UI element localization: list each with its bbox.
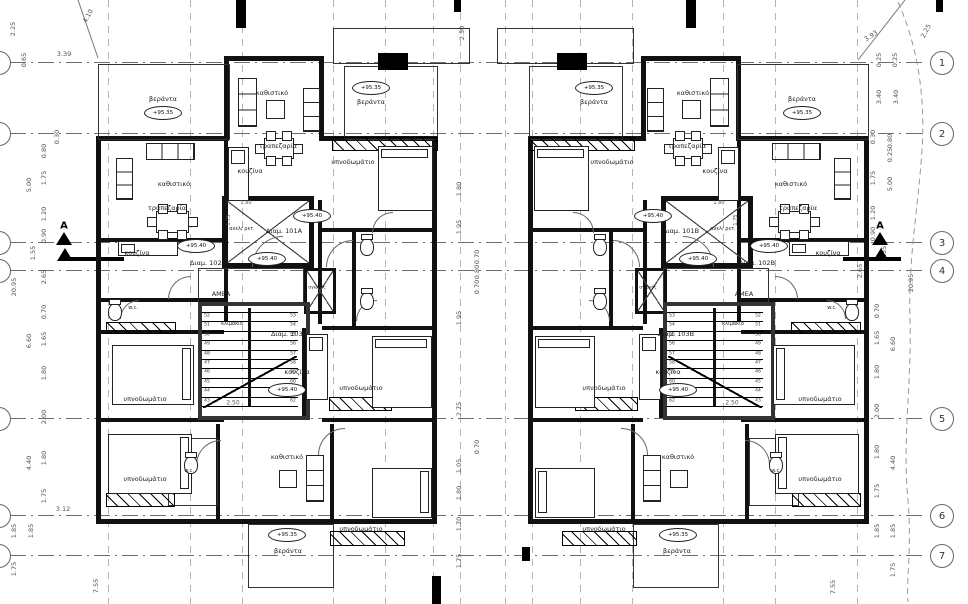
pillow-icon (375, 339, 427, 348)
column-pier (236, 0, 246, 28)
elevation-badge: +95.40 (659, 383, 697, 397)
stair-tread-number: 52 (755, 314, 761, 319)
dimension-label: 7.55 (829, 580, 837, 594)
dimension-label: 1.80 (40, 366, 48, 380)
dimension-label: 1.80 (40, 451, 48, 465)
elevation-badge: +95.40 (177, 239, 215, 253)
dimension-label: 4.40 (25, 456, 33, 470)
dimension-label: 5.00 (886, 177, 894, 191)
dimension-label: 6.60 (889, 337, 897, 351)
dimension-label: 4.40 (889, 456, 897, 470)
room-label: w.c. (128, 305, 138, 311)
stair-tread-number: 46 (755, 370, 761, 375)
stair-tread-number: 51 (755, 323, 761, 328)
room-label: υπνοδωμάτιο (339, 525, 382, 533)
dimension-label: 3.40 (875, 90, 883, 104)
pillow-icon (776, 348, 785, 400)
stair-tread-number: 53 (290, 314, 296, 319)
stair-tread-number: 44 (204, 389, 210, 394)
column-pier (686, 0, 696, 28)
column-pier (557, 53, 587, 70)
dimension-label: 1.75 (455, 554, 463, 568)
sofa-icon (116, 158, 133, 200)
stair-tread-number: 48 (755, 351, 761, 356)
room-label: κουζίνα (702, 167, 727, 175)
room-label: κουζίνα (124, 249, 149, 257)
stair-tread-number: 45 (204, 379, 210, 384)
stair-tread-number: 47 (204, 361, 210, 366)
toilet-icon (845, 303, 859, 321)
chair-icon (691, 156, 701, 166)
sink-icon (792, 244, 806, 253)
sofa-icon (238, 78, 257, 127)
column-pier (936, 0, 943, 12)
dimension-label: 1.75 (869, 171, 877, 185)
room-label: ΑΜΕΑ (212, 290, 231, 298)
tv-table-icon (682, 100, 701, 119)
elevation-badge: +95.40 (750, 239, 788, 253)
stair-tread-number: 62 (669, 398, 675, 403)
toilet-tank-icon (361, 288, 373, 294)
dimension-label: 20.95 (10, 278, 18, 297)
dimension-label: 6.60 (25, 334, 33, 348)
room-label: ανελ/ ρετ. (710, 226, 736, 232)
dimension-label: 2.00 (40, 410, 48, 424)
room-label: υπνοδωμάτιο (590, 158, 633, 166)
dimension-label: 0.80 (886, 134, 894, 148)
chair-icon (810, 217, 820, 227)
closet-hatch (562, 531, 637, 546)
dimension-label: 3.39 (57, 50, 71, 58)
elevation-badge: +95.40 (679, 252, 717, 266)
room-label: βεράντα (357, 98, 385, 106)
room-label: υπνοδωμάτιο (582, 525, 625, 533)
dimension-label: 1.75 (40, 171, 48, 185)
sofa-icon (772, 143, 821, 160)
dimension-label: 0.70 (473, 250, 481, 264)
chair-icon (691, 131, 701, 141)
sink-icon (642, 337, 656, 351)
room-label: κουζίνα (815, 249, 840, 257)
dimension-label: 0.70 (473, 440, 481, 454)
closet-hatch (106, 322, 176, 334)
room-label: υπνοδωμάτιο (798, 395, 841, 403)
dimension-label: 0.25 (886, 148, 894, 162)
pillow-icon (538, 471, 547, 513)
toilet-tank-icon (594, 288, 606, 294)
stair-tread-number: 54 (290, 323, 296, 328)
dimension-label: 1.20 (40, 207, 48, 221)
chair-icon (769, 217, 779, 227)
column-pier (522, 547, 530, 561)
stair-tread-number: 48 (204, 351, 210, 356)
sink-icon (721, 150, 735, 164)
chair-icon (282, 131, 292, 141)
dimension-label: 2.00 (873, 404, 881, 418)
sofa-icon (643, 455, 661, 502)
chair-icon (188, 217, 198, 227)
pillow-icon (537, 149, 584, 158)
dimension-label: 1.05 (455, 459, 463, 473)
elevation-badge: +95.35 (268, 528, 306, 542)
elevation-badge: +95.40 (248, 252, 286, 266)
room-label: Διαμ. 103B (658, 330, 694, 338)
room-label: τραπεζαρία (148, 204, 186, 212)
room-label: ανελ/ ρετ. (229, 226, 255, 232)
dimension-label: 1.55 (29, 246, 37, 260)
stair-tread-number: 46 (204, 370, 210, 375)
room-label: κουζίνα (655, 368, 680, 376)
dimension-label: 1.75 (733, 214, 739, 225)
dimension-label: 1.80 (713, 200, 724, 206)
dimension-label: 3.12 (56, 505, 70, 513)
dimension-label: 0.25 (891, 53, 899, 67)
section-label: A (876, 221, 884, 232)
room-label: κλιμάκιο (722, 321, 744, 327)
dimension-label: 1.80 (873, 365, 881, 379)
stair-tread-number: 43 (755, 398, 761, 403)
stair-break-line (203, 356, 297, 408)
dimension-label: 3.40 (892, 90, 900, 104)
chair-icon (799, 230, 809, 240)
stair-tread-number: 53 (669, 314, 675, 319)
section-label: A (60, 221, 68, 232)
closet-hatch (792, 493, 861, 507)
sofa-icon (146, 143, 195, 160)
stair-tread-number: 58 (669, 361, 675, 366)
section-cut-line (843, 257, 901, 261)
column-pier (432, 576, 441, 604)
room-label: αγωγός (308, 286, 325, 291)
pillow-icon (538, 339, 590, 348)
bed-icon (775, 434, 859, 494)
stair-tread-number: 47 (755, 361, 761, 366)
dimension-label: 1.80 (873, 445, 881, 459)
stair-tread-number: 62 (290, 398, 296, 403)
dimension-label: 1.85 (889, 524, 897, 538)
stair-tread-number: 52 (204, 314, 210, 319)
column-pier (454, 0, 461, 12)
room-label: βεράντα (663, 547, 691, 555)
stair-break-line (668, 356, 762, 408)
column-pier (378, 53, 408, 70)
room-label: υπνοδωμάτιο (123, 475, 166, 483)
toilet-tank-icon (770, 452, 782, 458)
dimension-label: 1.65 (873, 331, 881, 345)
amea-wc-room (663, 268, 769, 304)
dimension-label: 0.80 (473, 265, 481, 279)
chair-icon (266, 156, 276, 166)
stair-tread-number: 54 (669, 323, 675, 328)
wall (528, 136, 533, 524)
dimension-label: 1.80 (240, 200, 251, 206)
dimension-label: 0.90 (40, 229, 48, 243)
dimension-label: 2.50 (226, 400, 239, 407)
chair-icon (780, 230, 790, 240)
sofa-icon (834, 158, 851, 200)
dimension-label: 2.50 (725, 400, 738, 407)
dimension-label: 20.95 (907, 274, 915, 293)
stair-tread-number: 49 (755, 342, 761, 347)
stair-tread-number: 43 (204, 398, 210, 403)
dimension-label: 1.80 (455, 182, 463, 196)
pillow-icon (182, 348, 191, 400)
sink-icon (309, 337, 323, 351)
wall (533, 418, 643, 422)
room-label: Διαμ. 102A (190, 259, 226, 267)
dimension-label: 5.00 (25, 178, 33, 192)
stair-tread-number: 57 (290, 351, 296, 356)
elevation-badge: +95.35 (575, 81, 613, 95)
dimension-label: 0.80 (40, 144, 48, 158)
room-label: Διαμ. 101B (663, 227, 699, 235)
room-label: καθιστικό (271, 453, 303, 461)
wall (641, 58, 646, 141)
stair-tread-number: 45 (755, 379, 761, 384)
room-label: βεράντα (580, 98, 608, 106)
stair-tread-number: 49 (204, 342, 210, 347)
chair-icon (282, 156, 292, 166)
wall (533, 326, 643, 330)
chair-icon (266, 131, 276, 141)
stair-tread-number: 50 (204, 332, 210, 337)
room-label: υπνοδωμάτιο (339, 384, 382, 392)
dimension-label: 1.80 (455, 486, 463, 500)
toilet-icon (360, 292, 374, 310)
pillow-icon (381, 149, 428, 158)
amea-wc-room (198, 268, 304, 304)
chair-icon (177, 230, 187, 240)
wall (322, 418, 432, 422)
chair-icon (675, 131, 685, 141)
elevation-badge: +95.35 (783, 106, 821, 120)
elevation-badge: +95.40 (268, 383, 306, 397)
closet-hatch (106, 493, 175, 507)
dimension-label: 1.85 (27, 524, 35, 538)
stair-tread-number: 57 (669, 351, 675, 356)
room-label: υπνοδωμάτιο (123, 395, 166, 403)
dimension-label: 1.20 (869, 206, 877, 220)
room-label: καθιστικό (677, 89, 709, 97)
toilet-icon (593, 238, 607, 256)
dimension-label: 2.65 (856, 264, 864, 278)
dimension-label: 0.30 (53, 130, 61, 144)
chair-icon (675, 156, 685, 166)
sofa-icon (710, 78, 729, 127)
room-label: ΑΜΕΑ (735, 290, 754, 298)
toilet-icon (360, 238, 374, 256)
room-label: κλιμάκιο (221, 321, 243, 327)
stair-tread-number: 50 (755, 332, 761, 337)
sofa-icon (306, 455, 324, 502)
room-label: υπνοδωμάτιο (798, 475, 841, 483)
toilet-tank-icon (109, 299, 121, 305)
tv-table-icon (266, 100, 285, 119)
closet-hatch (330, 531, 405, 546)
dimension-label: 1.75 (889, 563, 897, 577)
room-label: τραπεζαρία (668, 142, 706, 150)
room-label: υπνοδωμάτιο (331, 158, 374, 166)
room-label: βεράντα (274, 547, 302, 555)
room-label: καθιστικό (775, 180, 807, 188)
dimension-label: 1.85 (873, 524, 881, 538)
room-label: τραπεζαρία (779, 204, 817, 212)
dimension-label: 0.30 (869, 130, 877, 144)
stair-tread-number: 56 (290, 342, 296, 347)
chair-icon (158, 230, 168, 240)
elevation-badge: +95.35 (659, 528, 697, 542)
toilet-tank-icon (594, 234, 606, 240)
room-label: καθιστικό (158, 180, 190, 188)
room-label: w.c. (771, 468, 781, 474)
chair-icon (147, 217, 157, 227)
floor-plan-canvas: 12345672.250.653.394.100.300.801.755.001… (0, 0, 968, 604)
dimension-label: 0.70 (40, 305, 48, 319)
room-label: κουζίνα (284, 368, 309, 376)
room-label: βεράντα (788, 95, 816, 103)
stair-tread-number: 56 (669, 342, 675, 347)
stair-tread-number: 58 (290, 361, 296, 366)
elevation-badge: +95.35 (144, 106, 182, 120)
room-label: w.c. (827, 305, 837, 311)
pillow-icon (420, 471, 429, 513)
veranda-outline (529, 66, 623, 140)
sofa-icon (647, 88, 664, 132)
dimension-label: 1.65 (40, 332, 48, 346)
wall (224, 56, 324, 61)
toilet-tank-icon (846, 299, 858, 305)
section-arrow-icon (56, 232, 72, 245)
toilet-icon (593, 292, 607, 310)
room-label: w.c. (184, 468, 194, 474)
tv-table-icon (670, 470, 688, 488)
wall (322, 326, 432, 330)
dimension-label: 1.75 (40, 489, 48, 503)
dimension-label: 1.95 (455, 220, 463, 234)
dimension-label: 1.85 (10, 524, 18, 538)
room-label: υπνοδωμάτιο (582, 384, 625, 392)
sofa-icon (303, 88, 320, 132)
dimension-label: 2.75 (455, 402, 463, 416)
tv-table-icon (279, 470, 297, 488)
room-label: Διαμ. 103A (271, 330, 307, 338)
room-label: αγωγός (639, 286, 656, 291)
elevation-badge: +95.40 (634, 209, 672, 223)
dimension-label: 2.65 (40, 270, 48, 284)
room-label: βεράντα (149, 95, 177, 103)
section-arrow-icon (872, 232, 888, 245)
dimension-label: 2.25 (9, 22, 17, 36)
elevation-badge: +95.35 (352, 81, 390, 95)
room-label: καθιστικό (662, 453, 694, 461)
dimension-label: 0.70 (473, 280, 481, 294)
room-label: Διαμ. 102B (739, 259, 775, 267)
room-label: κουζίνα (237, 167, 262, 175)
toilet-tank-icon (361, 234, 373, 240)
room-label: Διαμ. 101A (266, 227, 302, 235)
dimension-label: 0.65 (20, 53, 28, 67)
stair-tread-number: 44 (755, 389, 761, 394)
wall (641, 56, 741, 61)
room-label: καθιστικό (256, 89, 288, 97)
dimension-label: 7.55 (92, 579, 100, 593)
dimension-label: 1.95 (455, 311, 463, 325)
toilet-tank-icon (185, 452, 197, 458)
dimension-label: 1.70 (455, 517, 463, 531)
dimension-label: 1.75 (10, 562, 18, 576)
elevation-badge: +95.40 (293, 209, 331, 223)
dimension-label: 1.75 (226, 214, 232, 225)
stair-tread-number: 51 (204, 323, 210, 328)
dimension-label: 0.25 (875, 53, 883, 67)
closet-hatch (791, 322, 861, 334)
sink-icon (231, 150, 245, 164)
section-cut-line (66, 257, 124, 261)
dimension-label: 1.75 (873, 484, 881, 498)
dimension-label: 0.70 (873, 304, 881, 318)
room-label: τραπεζαρία (259, 142, 297, 150)
toilet-icon (108, 303, 122, 321)
